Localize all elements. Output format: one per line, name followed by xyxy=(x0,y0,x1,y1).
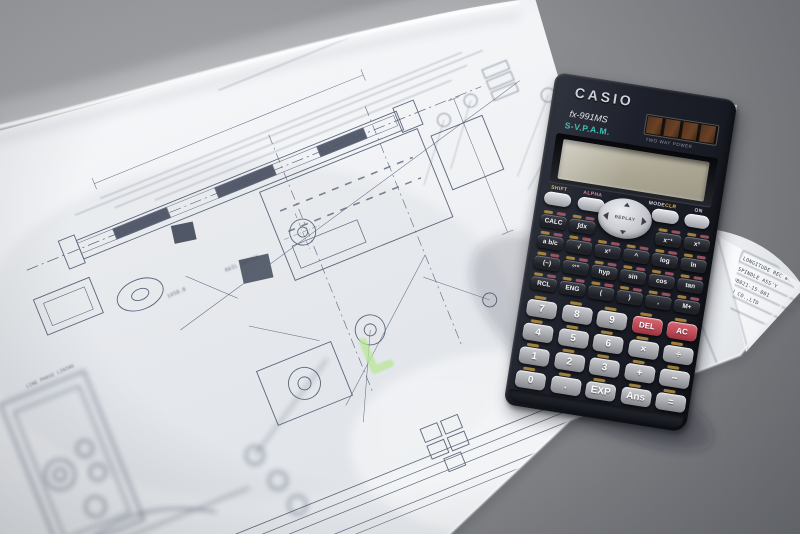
calc-key-ans[interactable]: Ans xyxy=(620,386,652,407)
calc-key-4[interactable]: 4 xyxy=(522,322,554,343)
calc-key-log[interactable]: log xyxy=(651,252,679,269)
calc-key-x-cubed[interactable]: x³ xyxy=(683,236,711,253)
calc-key-plus[interactable]: + xyxy=(623,363,655,384)
calc-key-equals[interactable]: = xyxy=(655,392,687,413)
replay-down-arrow[interactable] xyxy=(619,230,626,235)
calc-key-comma[interactable]: , xyxy=(644,294,672,311)
calc-key-minus[interactable]: − xyxy=(658,368,690,389)
calc-key-calc[interactable]: CALC xyxy=(540,214,568,231)
calc-key-integral[interactable]: ∫dx xyxy=(568,218,596,235)
calc-key-decimal[interactable]: . xyxy=(549,375,581,396)
calc-key-open-paren[interactable]: ( xyxy=(587,285,615,302)
calc-key-negative[interactable]: (−) xyxy=(533,255,561,272)
calc-key-6[interactable]: 6 xyxy=(592,333,624,354)
calc-key-x-inverse[interactable]: x⁻¹ xyxy=(654,232,682,249)
calc-key-divide[interactable]: ÷ xyxy=(662,344,694,365)
calc-key-8[interactable]: 8 xyxy=(561,304,593,325)
calc-key-7[interactable]: 7 xyxy=(526,298,558,319)
calc-key-ln[interactable]: ln xyxy=(680,257,708,274)
calc-key-rcl[interactable]: RCL xyxy=(530,276,558,293)
calc-key-0[interactable]: 0 xyxy=(514,370,546,391)
calc-key-eng[interactable]: ENG xyxy=(558,280,586,297)
calc-key-ac[interactable]: AC xyxy=(666,321,698,342)
calc-key-1[interactable]: 1 xyxy=(518,346,550,367)
calc-key-multiply[interactable]: × xyxy=(627,339,659,360)
calc-key-fraction[interactable]: a b/c xyxy=(536,234,564,251)
calc-key-power[interactable]: ^ xyxy=(622,248,650,265)
on-key[interactable] xyxy=(684,213,711,230)
calc-key-sqrt[interactable]: √ xyxy=(565,239,593,256)
calc-key-exp[interactable]: EXP xyxy=(584,381,616,402)
calc-key-dms[interactable]: °’” xyxy=(562,260,590,277)
calc-key-x-squared[interactable]: x² xyxy=(594,243,622,260)
calc-key-del[interactable]: DEL xyxy=(631,315,663,336)
calc-key-sin[interactable]: sin xyxy=(619,269,647,286)
calc-key-tan[interactable]: tan xyxy=(676,278,704,295)
calc-key-9[interactable]: 9 xyxy=(596,310,628,331)
photo-scene: RAIL GUTTER1450.8LINE PHASE LINING LONGI… xyxy=(0,0,800,534)
calc-key-hyp[interactable]: hyp xyxy=(590,264,618,281)
replay-up-arrow[interactable] xyxy=(624,202,631,207)
calculator-brand-logo: CASIO xyxy=(574,84,635,109)
calc-key-close-paren[interactable]: ) xyxy=(616,289,644,306)
calc-key-cos[interactable]: cos xyxy=(648,273,676,290)
calc-key-5[interactable]: 5 xyxy=(557,328,589,349)
calc-key-2[interactable]: 2 xyxy=(553,351,585,372)
calc-key-3[interactable]: 3 xyxy=(588,357,620,378)
display-bezel xyxy=(549,133,719,208)
calc-key-m-plus[interactable]: M+ xyxy=(673,298,701,315)
